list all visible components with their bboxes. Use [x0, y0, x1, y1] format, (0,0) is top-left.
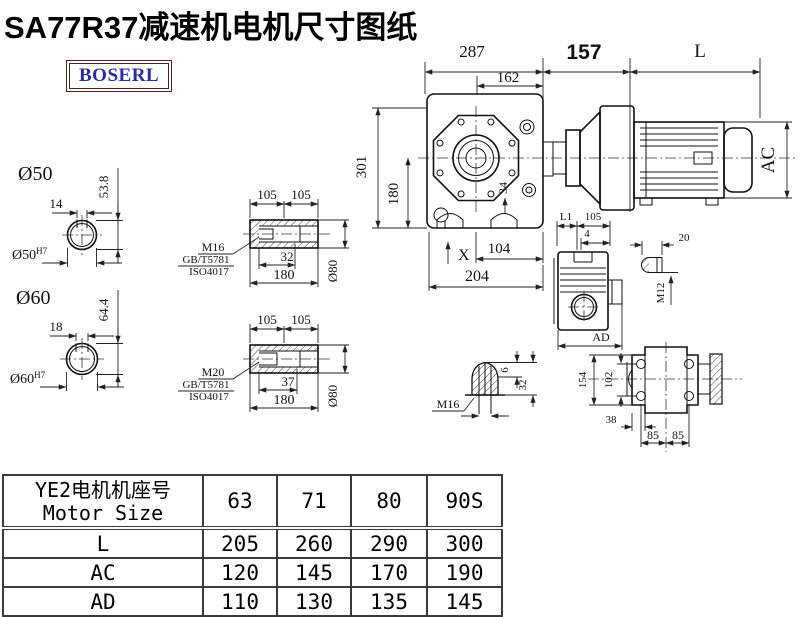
dim-102: 102: [603, 372, 615, 389]
gearbox-front-view: 301 180 34 X 104 204: [354, 94, 796, 291]
dim-6: 6: [499, 367, 511, 373]
motor-size-table: YE2电机机座号 Motor Size 63 71 80 90S L 205 2…: [2, 474, 503, 617]
hub1-dim-105b: 105: [291, 187, 311, 202]
dim-X: X: [458, 247, 470, 264]
cell-AD-63: 110: [203, 587, 277, 616]
cell-L-71: 260: [277, 528, 351, 558]
hub2-dim-d80: Ø80: [325, 385, 340, 407]
dim-34: 34: [496, 182, 510, 194]
hub2-bolt-label: M20: [202, 365, 225, 379]
cell-AC-80: 170: [351, 558, 427, 587]
table-header-motor-size: YE2电机机座号 Motor Size: [3, 475, 203, 528]
hub1-std-label: GB/T5781: [182, 254, 229, 266]
header-cn: YE2电机机座号: [4, 478, 202, 502]
dim-105-rear: 105: [585, 211, 602, 223]
size-63: 63: [203, 475, 277, 528]
hub-detail-m20: 105 105 37 180 Ø80 M20 GB/T5781 ISO4017: [178, 312, 349, 412]
cell-AC-63: 120: [203, 558, 277, 587]
cell-AD-90s: 145: [427, 587, 502, 616]
cell-AC-71: 145: [277, 558, 351, 587]
cell-L-80: 290: [351, 528, 427, 558]
top-dimensions: 287 162 157 L: [425, 41, 760, 212]
dim-301: 301: [354, 156, 370, 179]
d50h7-tol: H7: [36, 246, 47, 256]
hub2-dim-180: 180: [274, 393, 295, 408]
d50h7-dia: Ø50: [12, 248, 36, 263]
dim-38: 38: [606, 414, 618, 426]
dim-64-4: 64.4: [96, 298, 111, 321]
dim-L: L: [694, 41, 706, 62]
plug-thread-label: M16: [437, 397, 460, 411]
shaft-bore-50-detail: Ø50 14 53.8 Ø50H7: [12, 163, 123, 267]
dim-204: 204: [465, 268, 489, 285]
dim-287: 287: [459, 42, 485, 61]
table-row-AC: AC 120 145 170 190: [3, 558, 502, 587]
size-71: 71: [277, 475, 351, 528]
shaft-bore-60-detail: Ø60 18 64.4 Ø60H7: [10, 287, 124, 391]
dim-180-vertical: 180: [386, 183, 402, 206]
table-row-L: L 205 260 290 300: [3, 528, 502, 558]
dim-85b: 85: [672, 428, 684, 442]
cell-L-63: 205: [203, 528, 277, 558]
dim-32-plug: 32: [517, 380, 529, 391]
dim-162: 162: [497, 70, 520, 86]
size-90s: 90S: [427, 475, 502, 528]
hub2-dim-105a: 105: [257, 312, 277, 327]
breather-plug-detail: 6 32 M16: [432, 351, 537, 416]
dim-AC: AC: [758, 147, 779, 173]
row-label-AC: AC: [3, 558, 203, 587]
cell-L-90s: 300: [427, 528, 502, 558]
header-en: Motor Size: [4, 502, 202, 525]
row-label-AD: AD: [3, 587, 203, 616]
dim-L1: L1: [560, 211, 572, 223]
dim-20: 20: [679, 232, 691, 244]
hub2-dim-105b: 105: [291, 312, 311, 327]
d60h7-dia: Ø60: [10, 372, 34, 387]
dim-18: 18: [50, 319, 63, 334]
label-d50h7: Ø50H7: [12, 246, 48, 263]
dim-14: 14: [50, 196, 64, 211]
dim-AD: AD: [592, 330, 610, 344]
hub1-iso-label: ISO4017: [189, 266, 229, 278]
hub2-std-label: GB/T5781: [182, 379, 229, 391]
label-d60h7: Ø60H7: [10, 370, 46, 387]
table-header-row: YE2电机机座号 Motor Size 63 71 80 90S: [3, 475, 502, 528]
d60h7-tol: H7: [34, 370, 45, 380]
label-d50: Ø50: [18, 163, 52, 185]
technical-drawing: 287 162 157 L 301 180 3: [0, 0, 800, 460]
dim-157: 157: [566, 41, 601, 64]
dim-53-8: 53.8: [96, 176, 111, 199]
label-d60: Ø60: [16, 287, 50, 309]
dim-4: 4: [584, 228, 590, 240]
gearbox-rear-view: L1 105 4 AD: [554, 211, 622, 350]
cell-AC-90s: 190: [427, 558, 502, 587]
hub1-dim-d80: Ø80: [325, 260, 340, 282]
hub1-bolt-label: M16: [202, 240, 225, 254]
key-pin-detail: 20 M12: [630, 232, 690, 305]
dim-M12: M12: [655, 283, 667, 304]
hub-detail-m16: 105 105 32 180 Ø80 M16 GB/T5781 ISO4017: [178, 187, 349, 287]
hub1-dim-32: 32: [281, 249, 294, 264]
dim-104: 104: [488, 241, 511, 257]
size-80: 80: [351, 475, 427, 528]
dim-154: 154: [577, 371, 589, 388]
row-label-L: L: [3, 528, 203, 558]
hub1-dim-105a: 105: [257, 187, 277, 202]
dim-85a: 85: [647, 428, 659, 442]
hub2-iso-label: ISO4017: [189, 391, 229, 403]
cell-AD-80: 135: [351, 587, 427, 616]
hub2-dim-37: 37: [282, 374, 296, 389]
cell-AD-71: 130: [277, 587, 351, 616]
table-row-AD: AD 110 130 135 145: [3, 587, 502, 616]
gearbox-top-view: 154 102 38 85 85: [577, 342, 742, 452]
hub1-dim-180: 180: [274, 268, 295, 283]
